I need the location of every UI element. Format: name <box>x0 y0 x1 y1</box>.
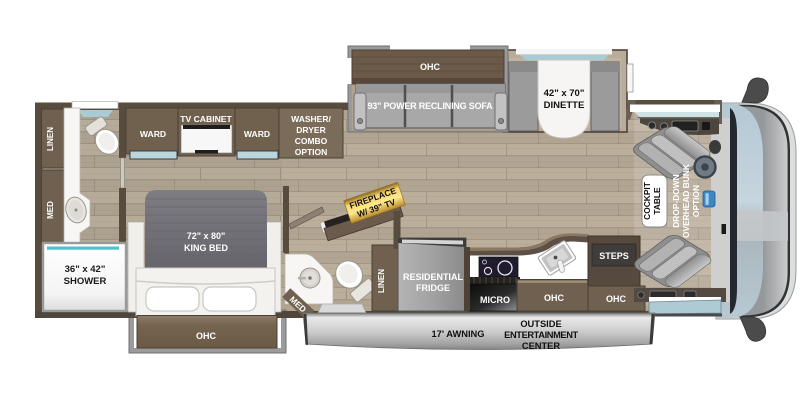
svg-text:OPTION: OPTION <box>295 147 328 157</box>
svg-text:OHC: OHC <box>420 62 441 72</box>
svg-text:36" x 42": 36" x 42" <box>65 264 106 275</box>
svg-text:LINEN: LINEN <box>46 127 55 151</box>
svg-text:STEPS: STEPS <box>599 251 629 261</box>
svg-text:OHC: OHC <box>606 294 627 304</box>
svg-text:42" x 70": 42" x 70" <box>544 88 585 99</box>
svg-text:MICRO: MICRO <box>480 295 510 305</box>
svg-text:COMBO: COMBO <box>295 136 328 146</box>
svg-text:DRYER: DRYER <box>296 125 325 135</box>
svg-text:KING BED: KING BED <box>184 243 229 253</box>
svg-text:DROP-DOWN: DROP-DOWN <box>671 174 681 228</box>
svg-text:FRIDGE: FRIDGE <box>416 283 450 293</box>
svg-text:ENTERTAINMENT: ENTERTAINMENT <box>504 330 578 340</box>
svg-text:93" POWER RECLINING SOFA: 93" POWER RECLINING SOFA <box>368 101 494 111</box>
svg-text:RESIDENTIAL: RESIDENTIAL <box>403 272 464 282</box>
svg-text:OPTION: OPTION <box>691 185 701 217</box>
svg-text:CENTER: CENTER <box>522 341 561 351</box>
svg-text:72" x 80": 72" x 80" <box>187 231 226 241</box>
svg-text:OHC: OHC <box>196 331 217 341</box>
svg-text:COCKPIT: COCKPIT <box>642 181 652 220</box>
svg-text:SHOWER: SHOWER <box>64 276 107 287</box>
svg-text:OVERHEAD BUNK: OVERHEAD BUNK <box>681 164 691 238</box>
svg-text:OHC: OHC <box>544 293 565 303</box>
svg-text:WARD: WARD <box>140 129 166 139</box>
svg-text:TABLE: TABLE <box>652 187 662 215</box>
svg-text:17' AWNING: 17' AWNING <box>431 329 484 339</box>
svg-text:TV CABINET: TV CABINET <box>180 114 232 124</box>
svg-text:MED: MED <box>46 201 55 219</box>
svg-text:DINETTE: DINETTE <box>544 100 585 111</box>
svg-text:WASHER/: WASHER/ <box>291 114 331 124</box>
svg-text:WARD: WARD <box>244 129 270 139</box>
svg-text:LINEN: LINEN <box>377 269 386 293</box>
svg-text:OUTSIDE: OUTSIDE <box>520 319 561 329</box>
